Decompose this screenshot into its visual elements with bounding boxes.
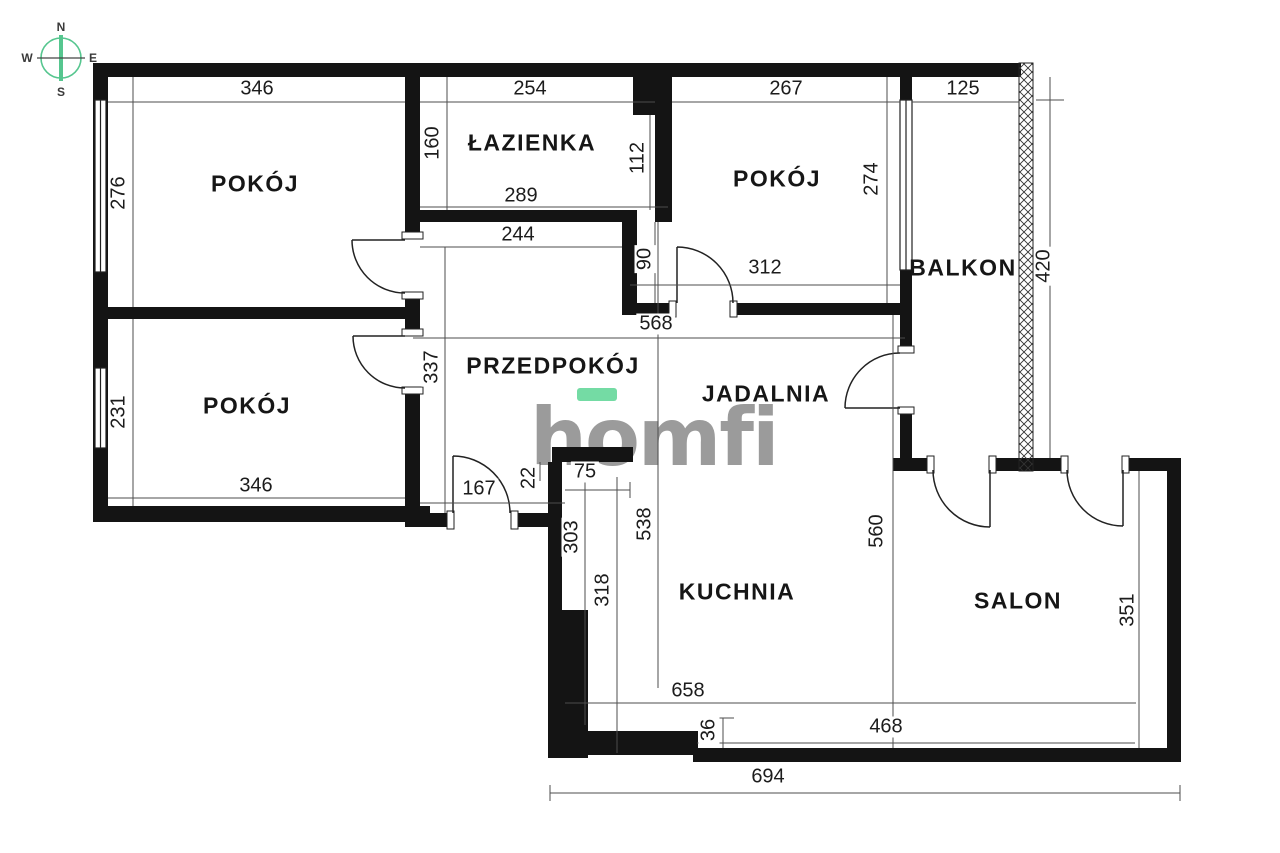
dimension-label: 337 [422, 347, 443, 386]
dimension-label: 36 [699, 716, 720, 744]
room-label: POKÓJ [211, 171, 299, 198]
compass-south-label: S [57, 85, 65, 99]
room-label: JADALNIA [702, 381, 830, 408]
compass-rose: N S W E [0, 0, 120, 120]
compass-east-label: E [89, 51, 97, 65]
dimension-label: 303 [562, 517, 583, 556]
dimension-label: 267 [766, 79, 805, 100]
dimension-label: 346 [237, 79, 276, 100]
compass-north-label: N [57, 20, 66, 34]
dimension-label: 160 [423, 123, 444, 162]
dimension-label: 346 [236, 476, 275, 497]
room-label: POKÓJ [203, 393, 291, 420]
dimension-label: 167 [459, 479, 498, 500]
dimension-label: 318 [593, 570, 614, 609]
dimension-label: 90 [635, 245, 656, 273]
dimension-label: 694 [748, 767, 787, 788]
labels-layer: POKÓJŁAZIENKAPOKÓJBALKONPOKÓJPRZEDPOKÓJJ… [0, 0, 1280, 853]
room-label: SALON [974, 588, 1062, 615]
room-label: KUCHNIA [679, 579, 796, 606]
dimension-label: 254 [510, 79, 549, 100]
dimension-label: 22 [519, 464, 540, 492]
compass-west-label: W [21, 51, 33, 65]
dimension-label: 420 [1034, 246, 1055, 285]
floor-plan: homfi [0, 0, 1280, 853]
dimension-label: 231 [109, 392, 130, 431]
room-label: BALKON [909, 255, 1016, 282]
dimension-label: 289 [501, 186, 540, 207]
dimension-label: 312 [745, 258, 784, 279]
dimension-label: 276 [109, 173, 130, 212]
room-label: POKÓJ [733, 166, 821, 193]
dimension-label: 274 [862, 159, 883, 198]
dimension-label: 351 [1118, 590, 1139, 629]
dimension-label: 658 [668, 681, 707, 702]
dimension-label: 538 [635, 504, 656, 543]
dimension-label: 244 [498, 225, 537, 246]
dimension-label: 568 [636, 314, 675, 335]
dimension-label: 112 [628, 139, 649, 177]
room-label: ŁAZIENKA [468, 130, 596, 157]
dimension-label: 125 [943, 79, 982, 100]
dimension-label: 560 [867, 511, 888, 550]
dimension-label: 468 [866, 717, 905, 738]
dimension-label: 75 [571, 462, 599, 483]
room-label: PRZEDPOKÓJ [466, 353, 639, 380]
